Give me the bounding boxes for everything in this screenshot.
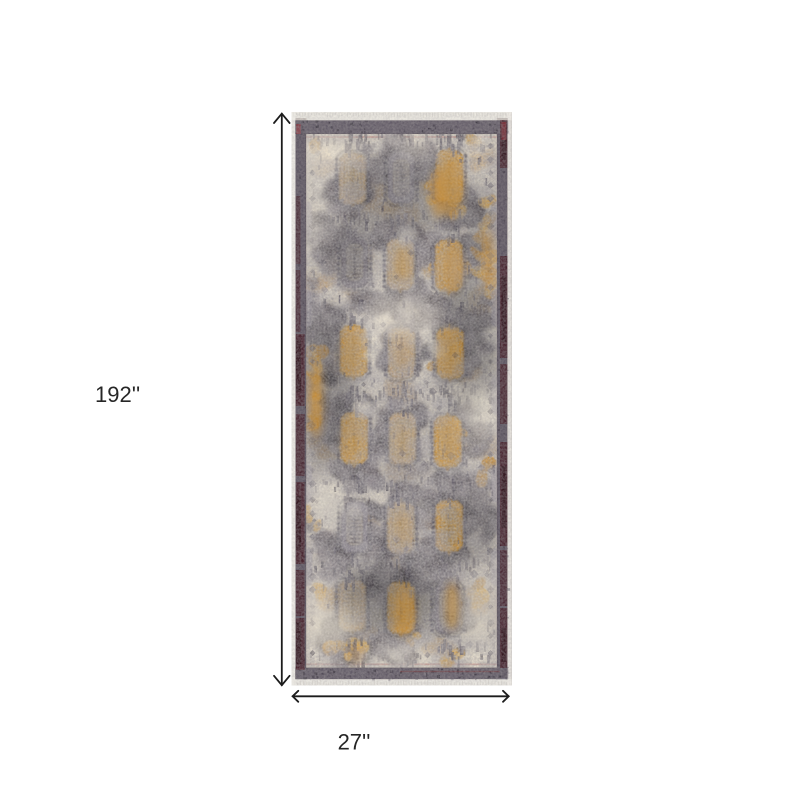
svg-text:192'': 192'' [95,382,140,407]
svg-text:27'': 27'' [338,730,371,755]
